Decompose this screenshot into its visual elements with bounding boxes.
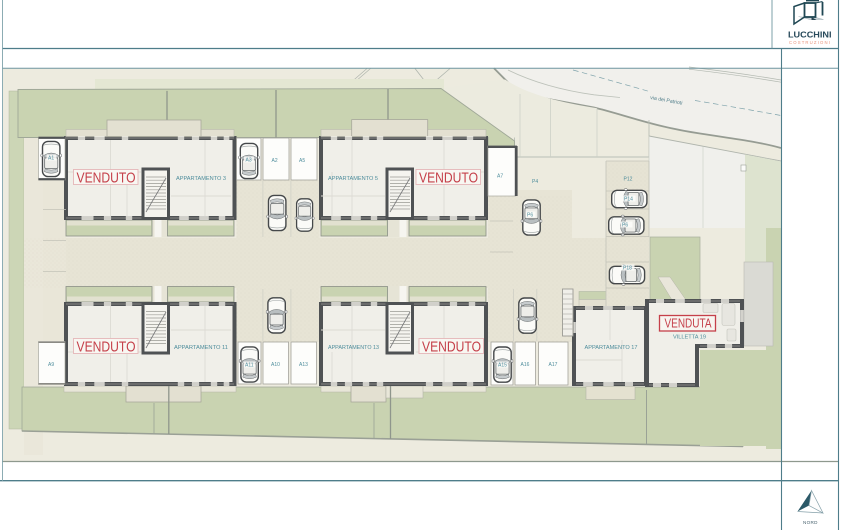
svg-text:P18: P18 <box>623 266 632 272</box>
svg-text:VENDUTO: VENDUTO <box>77 339 136 355</box>
svg-text:A13: A13 <box>299 362 308 368</box>
svg-text:LUCCHINI: LUCCHINI <box>788 30 832 40</box>
svg-text:C O S T R U Z I O N I: C O S T R U Z I O N I <box>789 40 830 45</box>
svg-text:A11: A11 <box>245 363 254 369</box>
svg-text:A5: A5 <box>299 158 305 164</box>
svg-text:A3: A3 <box>246 158 252 164</box>
svg-text:A1: A1 <box>48 156 54 162</box>
svg-text:A16: A16 <box>521 362 530 368</box>
svg-text:A2: A2 <box>272 158 278 164</box>
svg-text:VENDUTO: VENDUTO <box>77 170 136 186</box>
svg-text:VILLETTA 19: VILLETTA 19 <box>673 335 706 341</box>
svg-text:P4: P4 <box>532 179 538 185</box>
svg-text:P6: P6 <box>622 223 628 229</box>
svg-text:A7: A7 <box>497 174 503 180</box>
svg-text:VENDUTO: VENDUTO <box>419 170 478 186</box>
svg-text:NORD: NORD <box>803 520 818 525</box>
svg-text:P6: P6 <box>527 213 533 219</box>
svg-text:A9: A9 <box>48 362 54 368</box>
svg-text:VENDUTA: VENDUTA <box>665 317 712 331</box>
svg-text:P14: P14 <box>624 197 633 203</box>
svg-text:APPARTAMENTO 5: APPARTAMENTO 5 <box>328 176 378 182</box>
svg-text:APPARTAMENTO 3: APPARTAMENTO 3 <box>176 176 226 182</box>
svg-text:APPARTAMENTO 11: APPARTAMENTO 11 <box>174 345 228 351</box>
svg-text:P12: P12 <box>624 177 633 183</box>
svg-text:A10: A10 <box>271 362 280 368</box>
svg-text:APPARTAMENTO 13: APPARTAMENTO 13 <box>328 345 379 351</box>
svg-text:VENDUTO: VENDUTO <box>422 339 481 355</box>
svg-text:A15: A15 <box>498 363 507 369</box>
svg-text:A17: A17 <box>549 362 558 368</box>
svg-text:APPARTAMENTO 17: APPARTAMENTO 17 <box>585 345 638 351</box>
